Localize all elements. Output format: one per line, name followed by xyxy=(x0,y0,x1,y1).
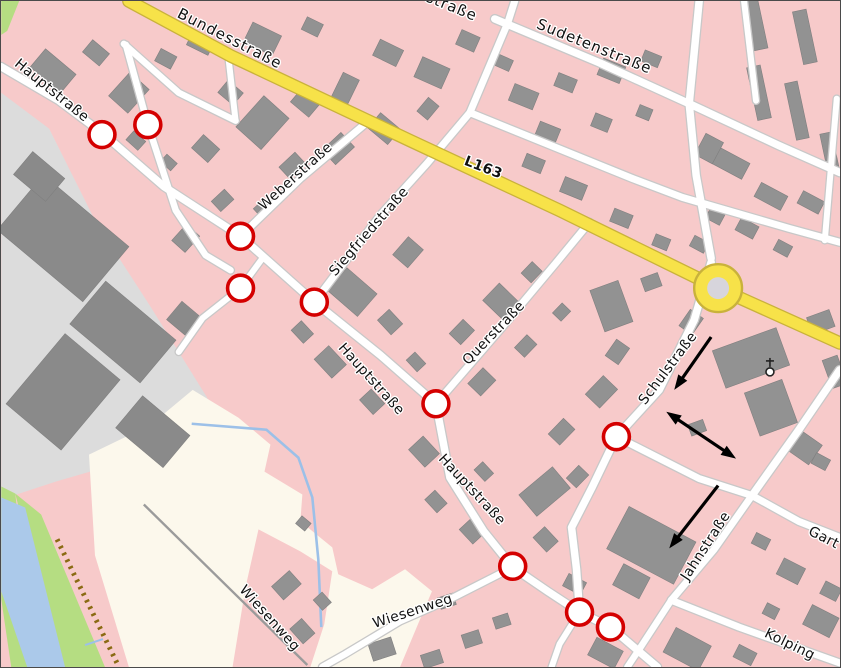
map-marker[interactable] xyxy=(603,424,629,450)
map-marker[interactable] xyxy=(135,112,161,138)
roundabout xyxy=(694,264,742,312)
map-marker[interactable] xyxy=(228,275,254,301)
map-marker[interactable] xyxy=(301,289,327,315)
map-canvas[interactable]: BundesstraßestraßeSudetenstraßeL163Haupt… xyxy=(1,1,840,667)
map-marker[interactable] xyxy=(228,223,254,249)
map-marker[interactable] xyxy=(89,122,115,148)
church-dot xyxy=(766,368,774,376)
map-marker[interactable] xyxy=(423,391,449,417)
map-marker[interactable] xyxy=(500,553,526,579)
map-container: BundesstraßestraßeSudetenstraßeL163Haupt… xyxy=(0,0,841,668)
map-marker[interactable] xyxy=(597,614,623,640)
map-marker[interactable] xyxy=(567,599,593,625)
roundabout-island xyxy=(707,277,729,299)
